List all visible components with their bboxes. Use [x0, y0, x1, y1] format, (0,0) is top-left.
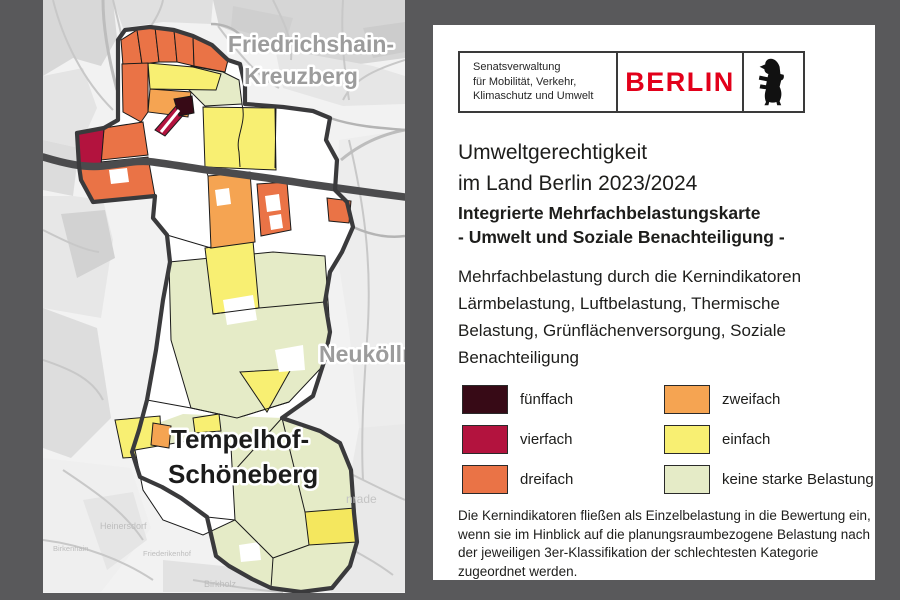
label-neukoelln: Neukölln	[319, 341, 405, 367]
legend-swatch-fuenffach	[462, 385, 508, 414]
label-heinersdorf: Heinersdorf	[100, 521, 147, 531]
senate-agency-text: Senatsverwaltung für Mobilität, Verkehr,…	[460, 53, 618, 111]
footnote-line: zugeordnet werden.	[458, 563, 871, 582]
title-line: im Land Berlin 2023/2024	[458, 168, 697, 199]
label-birkholz: Birkholz	[204, 579, 237, 589]
subtitle-line: - Umwelt und Soziale Benachteiligung -	[458, 225, 785, 249]
legend-swatch-einfach	[664, 425, 710, 454]
berlin-bear-icon	[758, 57, 790, 107]
agency-line: Senatsverwaltung	[473, 60, 616, 75]
area-zweifach-south	[151, 423, 171, 448]
legend-item: zweifach	[664, 385, 874, 414]
map-svg: Friedrichshain- Kreuzberg Neukölln Tempe…	[43, 0, 405, 593]
legend-item: einfach	[664, 425, 874, 454]
legend-item: vierfach	[462, 425, 573, 454]
label-friedrichshain-line1: Friedrichshain-	[228, 31, 394, 57]
senate-logo-box: Senatsverwaltung für Mobilität, Verkehr,…	[458, 51, 805, 113]
map-subtitle: Integrierte Mehrfachbelastungskarte - Um…	[458, 201, 785, 249]
page-title: Umweltgerechtigkeit im Land Berlin 2023/…	[458, 137, 697, 199]
label-nrade: nrade	[346, 492, 377, 506]
label-friedrichshain-line2: Kreuzberg	[244, 63, 358, 89]
legend-label: dreifach	[520, 465, 573, 494]
berlin-bear-cell	[744, 53, 803, 111]
legend-item: dreifach	[462, 465, 573, 494]
desc-line: Lärmbelastung, Luftbelastung, Thermische	[458, 290, 801, 317]
legend-label: fünffach	[520, 385, 573, 414]
label-friederikenhof: Friederikenhof	[143, 549, 192, 558]
subtitle-line: Integrierte Mehrfachbelastungskarte	[458, 201, 785, 225]
legend-label: vierfach	[520, 425, 573, 454]
legend-column: zweifach einfach keine starke Belastung	[664, 385, 874, 505]
legend-item: fünffach	[462, 385, 573, 414]
legend-label: einfach	[722, 425, 770, 454]
desc-line: Benachteiligung	[458, 344, 801, 371]
screenshot-root: { "background_color": "#59595b", "panel"…	[0, 0, 900, 600]
legend-label: zweifach	[722, 385, 780, 414]
title-line: Umweltgerechtigkeit	[458, 137, 697, 168]
desc-line: Belastung, Grünflächenversorgung, Sozial…	[458, 317, 801, 344]
berlin-wordmark: BERLIN	[618, 53, 744, 111]
info-panel: Senatsverwaltung für Mobilität, Verkehr,…	[433, 25, 875, 580]
footnote-line: der jeweiligen 3er-Klassifikation der sc…	[458, 544, 871, 563]
methodology-footnote: Die Kernindikatoren fließen als Einzelbe…	[458, 507, 871, 581]
label-tempelhof-line1: Tempelhof-	[171, 424, 309, 454]
legend-swatch-keine-belastung	[664, 465, 710, 494]
label-tempelhof-line2: Schöneberg	[168, 459, 318, 489]
indicator-description: Mehrfachbelastung durch die Kernindikato…	[458, 263, 801, 371]
legend-swatch-zweifach	[664, 385, 710, 414]
desc-line: Mehrfachbelastung durch die Kernindikato…	[458, 263, 801, 290]
footnote-line: Die Kernindikatoren fließen als Einzelbe…	[458, 507, 871, 526]
legend-swatch-dreifach	[462, 465, 508, 494]
city-map: Friedrichshain- Kreuzberg Neukölln Tempe…	[43, 0, 405, 593]
legend-label: keine starke Belastung	[722, 465, 874, 494]
legend-swatch-vierfach	[462, 425, 508, 454]
legend-item: keine starke Belastung	[664, 465, 874, 494]
footnote-line: wenn sie im Hinblick auf die planungsrau…	[458, 526, 871, 545]
legend-column: fünffach vierfach dreifach	[462, 385, 573, 505]
agency-line: Klimaschutz und Umwelt	[473, 89, 616, 104]
agency-line: für Mobilität, Verkehr,	[473, 75, 616, 90]
label-birkenhain: Birkenhain	[53, 544, 88, 553]
